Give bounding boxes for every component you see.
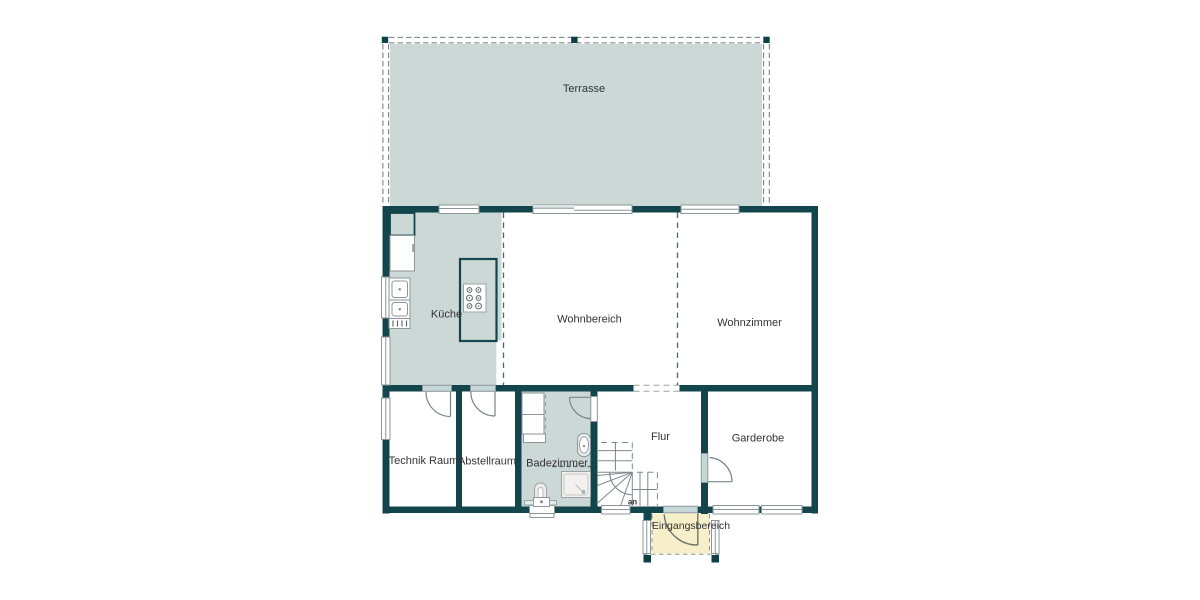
svg-text:Badezimmer: Badezimmer	[526, 458, 588, 470]
svg-text:Küche: Küche	[431, 309, 462, 321]
svg-text:Technik Raum: Technik Raum	[389, 455, 459, 467]
svg-text:Eingangsbereich: Eingangsbereich	[652, 520, 730, 532]
svg-text:Abstellraum: Abstellraum	[458, 456, 516, 468]
svg-text:Garderobe: Garderobe	[732, 433, 785, 445]
svg-text:Wohnbereich: Wohnbereich	[557, 314, 622, 326]
svg-text:Wohnzimmer: Wohnzimmer	[717, 317, 782, 329]
svg-text:Flur: Flur	[651, 431, 670, 443]
svg-text:Terrasse: Terrasse	[563, 83, 605, 95]
svg-text:an: an	[628, 498, 637, 507]
